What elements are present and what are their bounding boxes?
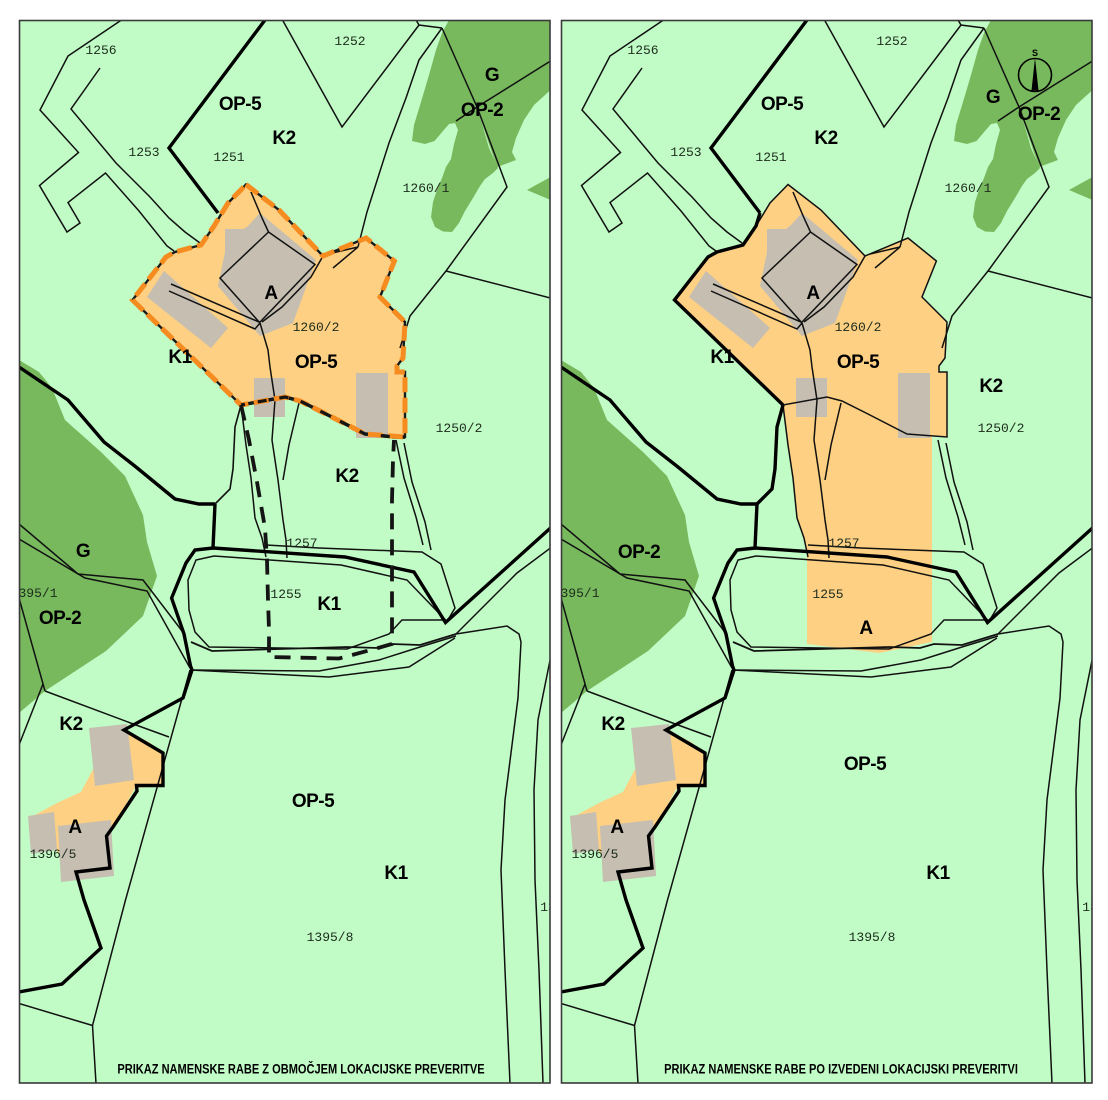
- svg-text:1253: 1253: [670, 145, 701, 160]
- svg-text:1395/8: 1395/8: [307, 930, 354, 945]
- svg-text:1250/2: 1250/2: [436, 421, 483, 436]
- svg-text:395/1: 395/1: [18, 586, 57, 601]
- svg-text:K1: K1: [168, 347, 192, 368]
- svg-text:K1: K1: [384, 863, 408, 884]
- svg-text:1256: 1256: [627, 43, 658, 58]
- svg-text:1260/1: 1260/1: [403, 181, 450, 196]
- svg-text:1396/5: 1396/5: [30, 847, 77, 862]
- svg-text:G: G: [76, 541, 90, 562]
- svg-text:OP-5: OP-5: [837, 352, 880, 373]
- svg-text:13: 13: [540, 900, 556, 915]
- svg-text:1255: 1255: [270, 587, 301, 602]
- svg-text:PRIKAZ NAMENSKE RABE Z OBMOČJE: PRIKAZ NAMENSKE RABE Z OBMOČJEM LOKACIJS…: [117, 1060, 484, 1077]
- svg-text:1252: 1252: [876, 34, 907, 49]
- svg-text:G: G: [485, 65, 499, 86]
- svg-text:K1: K1: [710, 347, 734, 368]
- svg-text:OP-2: OP-2: [39, 608, 81, 629]
- svg-text:1252: 1252: [334, 34, 365, 49]
- svg-text:OP-5: OP-5: [761, 94, 804, 115]
- svg-text:OP-5: OP-5: [219, 94, 262, 115]
- svg-text:K1: K1: [317, 594, 341, 615]
- svg-text:S: S: [1032, 48, 1038, 58]
- svg-text:K2: K2: [59, 714, 82, 735]
- svg-text:1395/8: 1395/8: [849, 930, 896, 945]
- svg-text:K2: K2: [979, 376, 1002, 397]
- svg-text:OP-2: OP-2: [1018, 104, 1060, 125]
- svg-text:K2: K2: [814, 128, 837, 149]
- svg-text:OP-2: OP-2: [618, 542, 660, 563]
- svg-text:A: A: [264, 283, 278, 304]
- svg-text:1260/2: 1260/2: [835, 320, 882, 335]
- svg-text:1257: 1257: [828, 536, 859, 551]
- svg-text:G: G: [986, 87, 1000, 108]
- svg-text:K1: K1: [926, 863, 950, 884]
- svg-text:1396/5: 1396/5: [572, 847, 619, 862]
- svg-text:OP-5: OP-5: [292, 791, 335, 812]
- svg-text:1257: 1257: [286, 536, 317, 551]
- svg-text:1256: 1256: [85, 43, 116, 58]
- svg-text:1251: 1251: [213, 150, 244, 165]
- svg-text:395/1: 395/1: [560, 586, 599, 601]
- svg-text:1260/1: 1260/1: [945, 181, 992, 196]
- svg-text:1250/2: 1250/2: [978, 421, 1025, 436]
- svg-text:1260/2: 1260/2: [293, 320, 340, 335]
- svg-text:A: A: [806, 283, 820, 304]
- svg-text:OP-5: OP-5: [295, 352, 338, 373]
- svg-text:K2: K2: [335, 466, 358, 487]
- svg-text:A: A: [68, 817, 82, 838]
- svg-text:A: A: [610, 817, 624, 838]
- svg-text:K2: K2: [272, 128, 295, 149]
- svg-text:1255: 1255: [812, 587, 843, 602]
- svg-text:13: 13: [1082, 900, 1098, 915]
- svg-text:OP-5: OP-5: [844, 754, 887, 775]
- svg-text:1253: 1253: [128, 145, 159, 160]
- svg-text:A: A: [859, 618, 873, 639]
- svg-text:K2: K2: [601, 714, 624, 735]
- svg-text:PRIKAZ NAMENSKE RABE PO IZVEDE: PRIKAZ NAMENSKE RABE PO IZVEDENI LOKACIJ…: [664, 1061, 1018, 1077]
- svg-text:1251: 1251: [755, 150, 786, 165]
- svg-text:OP-2: OP-2: [461, 100, 503, 121]
